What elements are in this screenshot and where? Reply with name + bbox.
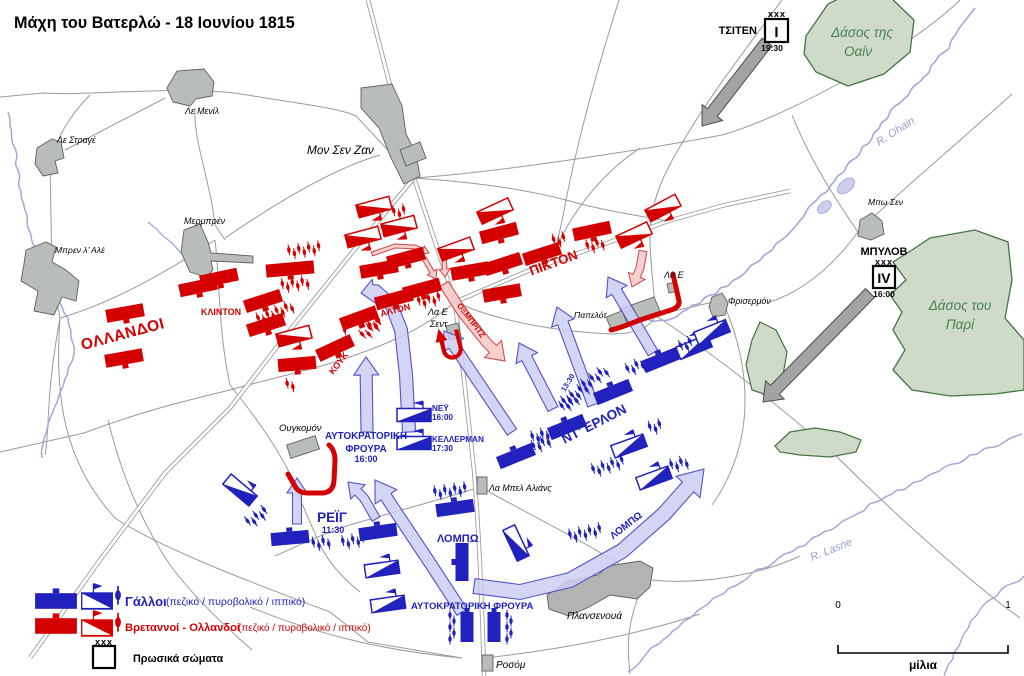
svg-text:Μερμπρέν: Μερμπρέν: [184, 216, 226, 226]
svg-text:16:00: 16:00: [354, 454, 377, 464]
svg-text:Μάχη του Βατερλώ - 18 Ιουνίου: Μάχη του Βατερλώ - 18 Ιουνίου 1815: [14, 14, 295, 32]
svg-text:Δάσος του: Δάσος του: [928, 298, 992, 313]
svg-text:16:00: 16:00: [873, 289, 895, 299]
svg-text:ΡΕΪΓ: ΡΕΪΓ: [317, 510, 347, 525]
svg-text:17:30: 17:30: [432, 444, 453, 453]
svg-text:Λε Στραγέ: Λε Στραγέ: [56, 135, 96, 145]
svg-text:11:30: 11:30: [322, 525, 345, 535]
svg-text:Μπω Σεν: Μπω Σεν: [868, 197, 904, 207]
svg-text:Πλανσενουά: Πλανσενουά: [567, 610, 622, 622]
svg-text:Παπελότ: Παπελότ: [574, 310, 607, 320]
svg-text:Φρισερμόν: Φρισερμόν: [728, 296, 771, 306]
svg-text:Μον Σεν Ζαν: Μον Σεν Ζαν: [307, 143, 374, 157]
svg-text:(πεζικό / πυροβολικό / ιππικό): (πεζικό / πυροβολικό / ιππικό): [238, 622, 371, 634]
svg-text:xxx: xxx: [768, 9, 786, 19]
svg-text:Λα Ε: Λα Ε: [427, 307, 449, 317]
svg-text:ΤΣΙΤΕΝ: ΤΣΙΤΕΝ: [719, 25, 757, 37]
svg-text:IV: IV: [877, 270, 891, 286]
svg-text:Ροσόμ: Ροσόμ: [496, 659, 526, 671]
svg-text:I: I: [774, 24, 778, 41]
svg-text:μίλια: μίλια: [909, 658, 938, 672]
svg-text:1: 1: [1005, 600, 1011, 611]
svg-text:Πρωσικά σώματα: Πρωσικά σώματα: [133, 653, 224, 665]
svg-text:ΑΥΤΟΚΡΑΤΟΡΙΚΗ: ΑΥΤΟΚΡΑΤΟΡΙΚΗ: [325, 431, 407, 442]
svg-text:Σεντ: Σεντ: [429, 319, 448, 329]
svg-text:0: 0: [835, 600, 841, 611]
svg-text:ΑΥΤΟΚΡΑΤΟΡΙΚΗ ΦΡΟΥΡΑ: ΑΥΤΟΚΡΑΤΟΡΙΚΗ ΦΡΟΥΡΑ: [411, 601, 534, 612]
svg-text:Δάσος της: Δάσος της: [830, 25, 893, 40]
svg-text:ΛΟΜΠΩ: ΛΟΜΠΩ: [437, 533, 479, 545]
svg-text:Λε Μενίλ: Λε Μενίλ: [184, 106, 219, 116]
svg-text:19:30: 19:30: [761, 43, 783, 53]
svg-text:ΚΕΛΛΕΡΜΑΝ: ΚΕΛΛΕΡΜΑΝ: [432, 435, 484, 444]
svg-text:Λα Ε: Λα Ε: [663, 270, 685, 280]
svg-text:Βρεταννοί - Ολλανδοί: Βρεταννοί - Ολλανδοί: [125, 622, 240, 634]
svg-text:ΚΛΙΝΤΟΝ: ΚΛΙΝΤΟΝ: [201, 307, 241, 317]
svg-text:Λα Μπελ Αλιάνς: Λα Μπελ Αλιάνς: [488, 483, 552, 493]
svg-text:(πεζικό / πυροβολικό / ιππικό): (πεζικό / πυροβολικό / ιππικό): [166, 596, 305, 608]
svg-text:Γάλλοι: Γάλλοι: [125, 594, 167, 609]
svg-text:Ουγκομόν: Ουγκομόν: [279, 423, 322, 434]
svg-text:Παρί: Παρί: [946, 317, 976, 332]
svg-text:Οαίν: Οαίν: [844, 44, 872, 59]
svg-text:ΝΕΫ: ΝΕΫ: [432, 403, 449, 413]
svg-text:Μπρεν λ’ Αλέ: Μπρεν λ’ Αλέ: [55, 245, 105, 255]
svg-text:16:00: 16:00: [432, 413, 453, 422]
